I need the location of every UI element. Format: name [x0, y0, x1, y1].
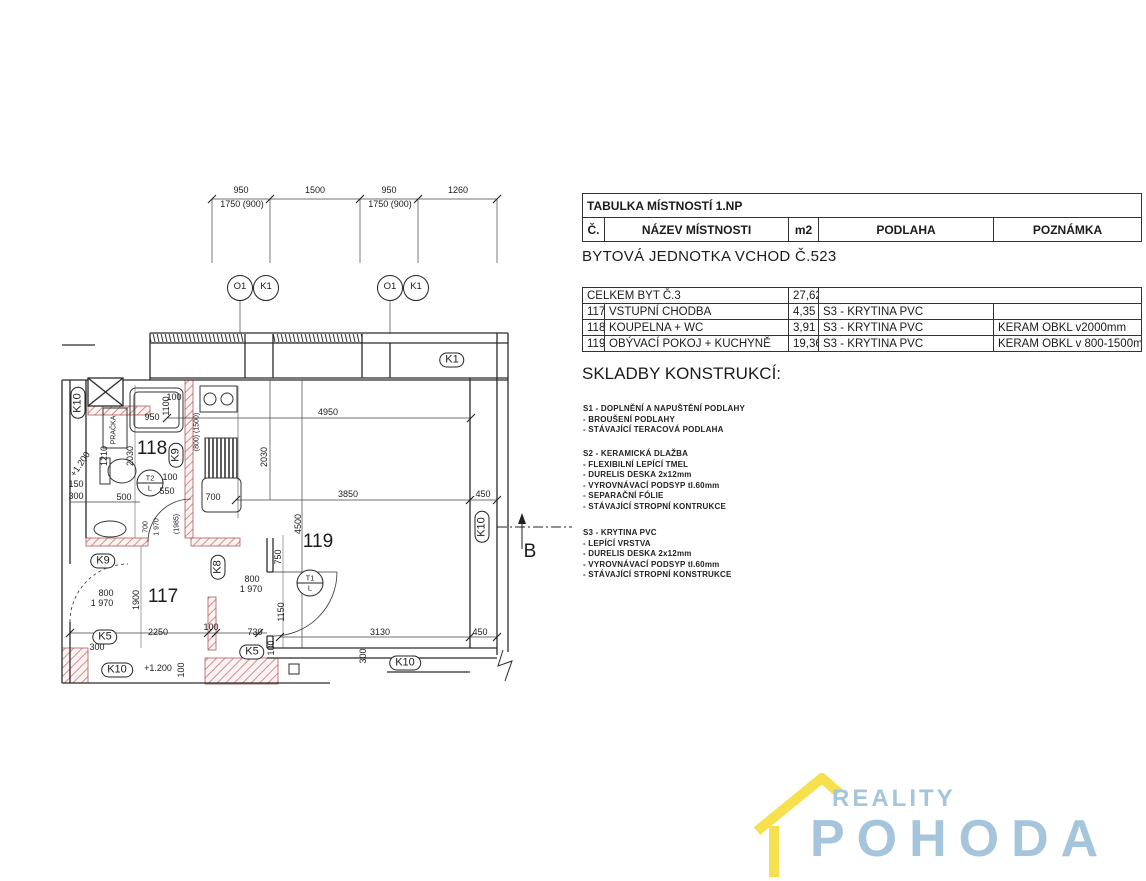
- plan-label: (1985): [174, 514, 181, 534]
- plan-label: K9: [90, 554, 115, 569]
- plan-label: 1260: [448, 185, 468, 195]
- column-header: POZNÁMKA: [994, 218, 1142, 242]
- plan-label: K1: [403, 275, 429, 301]
- plan-label: 730: [247, 627, 262, 637]
- logo-text-pohoda: POHODA: [810, 809, 1110, 869]
- plan-label: K10: [389, 656, 421, 671]
- plan-label: 1 970: [154, 518, 161, 536]
- column-header: PODLAHA: [819, 218, 994, 242]
- plan-label: 100: [176, 662, 186, 677]
- plan-label: 300: [358, 648, 368, 663]
- plan-label: 1500: [305, 185, 325, 195]
- plan-label: 1210: [99, 446, 109, 466]
- plan-label: 4950: [318, 407, 338, 417]
- plan-label: 800: [244, 574, 259, 584]
- plan-label: 950: [144, 412, 159, 422]
- plan-label: PRAČKA: [111, 416, 118, 445]
- plan-label: 117: [148, 586, 178, 608]
- plan-label: +1.200: [144, 663, 172, 673]
- plan-label: (800) (1500): [194, 413, 201, 452]
- plan-label: 950: [381, 185, 396, 195]
- plan-label: O1: [377, 275, 403, 301]
- skladba-section: S3 - KRYTINA PVC - LEPÍCÍ VRSTVA - DUREL…: [583, 528, 732, 581]
- plan-label: 119: [303, 531, 333, 553]
- room-table-title: TABULKA MÍSTNOSTÍ 1.NP: [583, 194, 1142, 218]
- windows: [150, 334, 362, 343]
- room-table-headrow: Č.NÁZEV MÍSTNOSTIm2PODLAHAPOZNÁMKA: [583, 218, 1142, 242]
- room-table-header: TABULKA MÍSTNOSTÍ 1.NP Č.NÁZEV MÍSTNOSTI…: [582, 193, 1142, 242]
- plan-label: 118: [137, 438, 167, 460]
- plan-label: K5: [239, 645, 264, 660]
- plan-label: 1 970: [240, 584, 263, 594]
- skladba-section: S2 - KERAMICKÁ DLAŽBA - FLEXIBILNÍ LEPÍC…: [583, 449, 726, 512]
- plan-label: T1L: [297, 570, 324, 597]
- plan-label: 1900: [131, 590, 141, 610]
- plan-label: 450: [475, 489, 490, 499]
- plan-label: 100: [162, 472, 177, 482]
- table-row: 118KOUPELNA + WC3,91S3 - KRYTINA PVCKERA…: [583, 320, 1142, 336]
- skladba-section: S1 - DOPLNĚNÍ A NAPUŠTĚNÍ PODLAHY - BROU…: [583, 404, 745, 436]
- table-row: 119OBÝVACÍ POKOJ + KUCHYNĚ19,36S3 - KRYT…: [583, 336, 1142, 352]
- plan-label: 3130: [370, 627, 390, 637]
- plan-label: B: [524, 541, 537, 563]
- plan-label: 1750 (900): [220, 199, 264, 209]
- plan-label: 3850: [338, 489, 358, 499]
- plan-label: 500: [116, 492, 131, 502]
- plan-label: 100: [203, 622, 218, 632]
- column-header: Č.: [583, 218, 605, 242]
- room-table-rows: CELKEM BYT Č.327,62117VSTUPNÍ CHODBA4,35…: [582, 287, 1142, 352]
- plan-label: 550: [159, 486, 174, 496]
- blueprint-page: 950150095012601750 (900)1750 (900)O1K1O1…: [0, 0, 1146, 881]
- plan-label: K10: [71, 387, 86, 419]
- plan-label: 750: [273, 549, 283, 564]
- plan-label: 700: [205, 492, 220, 502]
- plan-label: K10: [101, 663, 133, 678]
- plan-label: K1: [439, 353, 464, 368]
- table-row-total: CELKEM BYT Č.327,62: [583, 288, 1142, 304]
- plan-label: 700: [143, 521, 150, 533]
- plan-label: K10: [475, 511, 490, 543]
- floorplan-drawing: [0, 0, 575, 710]
- plan-label: 4500: [293, 514, 303, 534]
- plan-label: K1: [253, 275, 279, 301]
- walls: [62, 333, 512, 683]
- plan-label: 300: [89, 642, 104, 652]
- plan-label: 1750 (900): [368, 199, 412, 209]
- washbasin: [94, 521, 126, 537]
- plan-label: 1 970: [91, 598, 114, 608]
- plan-label: 100: [266, 640, 276, 655]
- unit-subtitle: BYTOVÁ JEDNOTKA VCHOD Č.523: [582, 248, 837, 265]
- plan-label: 150: [68, 479, 83, 489]
- plan-label: 450: [472, 627, 487, 637]
- plan-label: 1100: [161, 396, 171, 415]
- plan-label: 2250: [148, 627, 168, 637]
- plan-label: K8: [211, 554, 226, 579]
- column-header: m2: [789, 218, 819, 242]
- table-row: 117VSTUPNÍ CHODBA4,35S3 - KRYTINA PVC: [583, 304, 1142, 320]
- radiator: [205, 438, 237, 478]
- plan-label: 2030: [259, 447, 269, 467]
- plan-label: 1150: [276, 602, 286, 621]
- plan-label: 2030: [125, 446, 135, 466]
- plan-label: 800: [98, 588, 113, 598]
- plan-label: K9: [169, 442, 184, 467]
- plan-label: 300: [68, 491, 83, 501]
- skladby-heading: SKLADBY KONSTRUKCÍ:: [582, 364, 781, 384]
- stove: [200, 386, 237, 412]
- reality-pohoda-logo: REALITY POHODA: [752, 773, 1146, 881]
- plan-label: O1: [227, 275, 253, 301]
- column-header: NÁZEV MÍSTNOSTI: [605, 218, 789, 242]
- plan-label: 950: [233, 185, 248, 195]
